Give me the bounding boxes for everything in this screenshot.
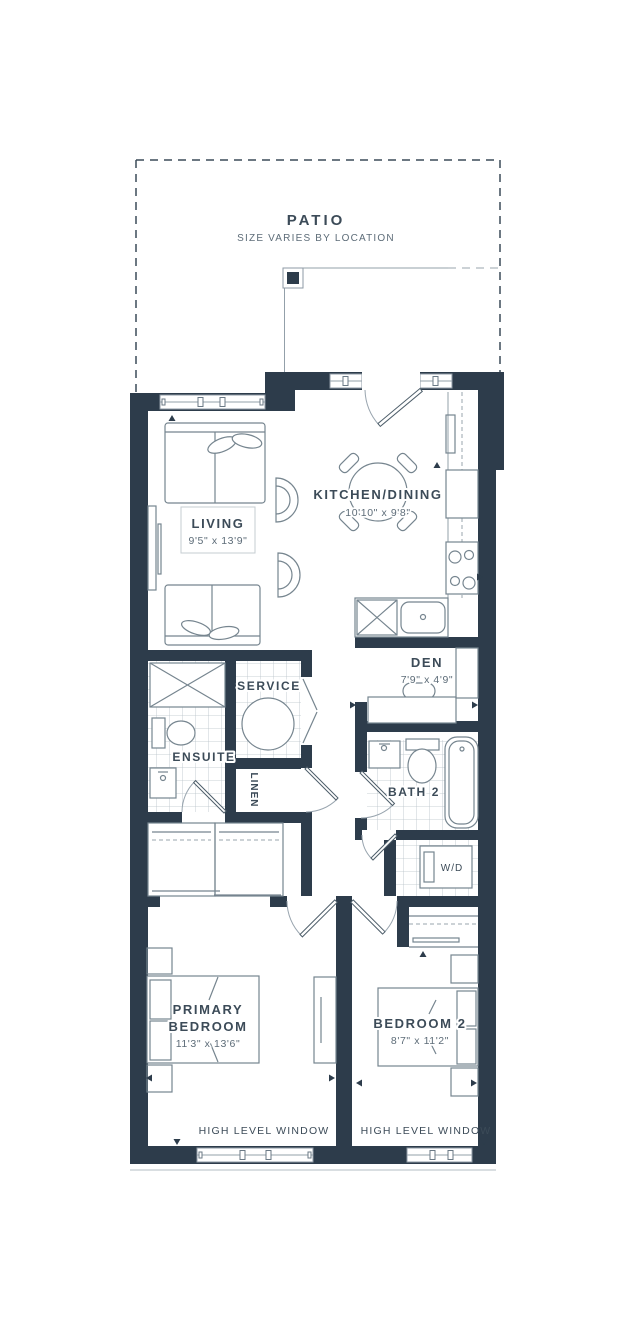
- kitchen-fixtures: [338, 415, 478, 637]
- den-desk: [368, 697, 456, 723]
- primary-bedroom-label-1: PRIMARY: [173, 1002, 244, 1017]
- kitchen-dining-dims: 10'10" x 9'8": [345, 507, 410, 519]
- laundry-label: W/D: [441, 863, 463, 874]
- linen-door: [305, 767, 338, 812]
- pantry: [446, 415, 455, 453]
- ensuite-toilet: [152, 718, 195, 748]
- ensuite-sink: [150, 768, 176, 798]
- living-window: [160, 395, 265, 409]
- high-level-window-left-symbol: [197, 1148, 313, 1162]
- service-tank: [242, 698, 294, 750]
- high-level-window-left-label: HIGH LEVEL WINDOW: [199, 1125, 330, 1137]
- bedroom2-dims: 8'7" x 11'2": [391, 1035, 449, 1047]
- nightstand: [147, 948, 172, 974]
- living-furniture: [148, 423, 300, 645]
- bedroom2-door: [351, 900, 397, 934]
- armchair-bottom: [278, 553, 300, 597]
- living-label: LIVING: [192, 516, 245, 531]
- shower: [150, 663, 225, 707]
- stove: [446, 542, 478, 594]
- kitchen-window-left: [330, 374, 362, 388]
- linen-label: LINEN: [248, 773, 259, 808]
- bedroom2-closet: [409, 916, 478, 947]
- bedroom2-label: BEDROOM 2: [373, 1016, 466, 1031]
- patio-note: SIZE VARIES BY LOCATION: [237, 233, 395, 244]
- tv-console: [148, 506, 161, 590]
- patio-boundary-dashed: [136, 160, 500, 393]
- ensuite-label: ENSUITE: [172, 750, 235, 764]
- bath2-sink: [369, 741, 400, 768]
- den-cabinet: [456, 648, 478, 698]
- high-level-window-right-symbol: [407, 1148, 472, 1162]
- bath2-label: BATH 2: [388, 785, 440, 799]
- service-bifold-door: [303, 679, 317, 743]
- floor-plan-page: PATIO SIZE VARIES BY LOCATION: [0, 0, 634, 1328]
- service-fixtures: [242, 698, 294, 750]
- primary-dresser: [314, 977, 336, 1063]
- den-label: DEN: [411, 655, 443, 670]
- bedroom2-furniture: [378, 916, 478, 1096]
- patio-door: [362, 372, 422, 426]
- kitchen-dining-label: KITCHEN/DINING: [313, 487, 442, 502]
- primary-closets: [148, 823, 283, 896]
- floor-plan-drawing: PATIO SIZE VARIES BY LOCATION: [0, 0, 634, 1328]
- fridge: [446, 470, 478, 518]
- sofa-bottom: [165, 585, 260, 645]
- kitchen-window-right: [420, 374, 452, 388]
- primary-bedroom-label-2: BEDROOM: [168, 1019, 247, 1034]
- sofa-top: [165, 423, 265, 503]
- lower-counter: [355, 598, 448, 637]
- armchair-top: [276, 478, 298, 522]
- high-level-window-right-label: HIGH LEVEL WINDOW: [361, 1125, 492, 1137]
- patio-label: PATIO: [287, 212, 346, 229]
- living-dims: 9'5" x 13'9": [189, 535, 248, 547]
- primary-bedroom-door: [287, 900, 337, 937]
- primary-bedroom-dims: 11'3" x 13'6": [176, 1038, 241, 1050]
- service-label: SERVICE: [237, 679, 301, 693]
- patio-area: PATIO SIZE VARIES BY LOCATION: [136, 160, 500, 393]
- nightstand: [451, 955, 478, 983]
- bathtub: [445, 737, 478, 828]
- den-dims: 7'9" x 4'9": [401, 674, 454, 686]
